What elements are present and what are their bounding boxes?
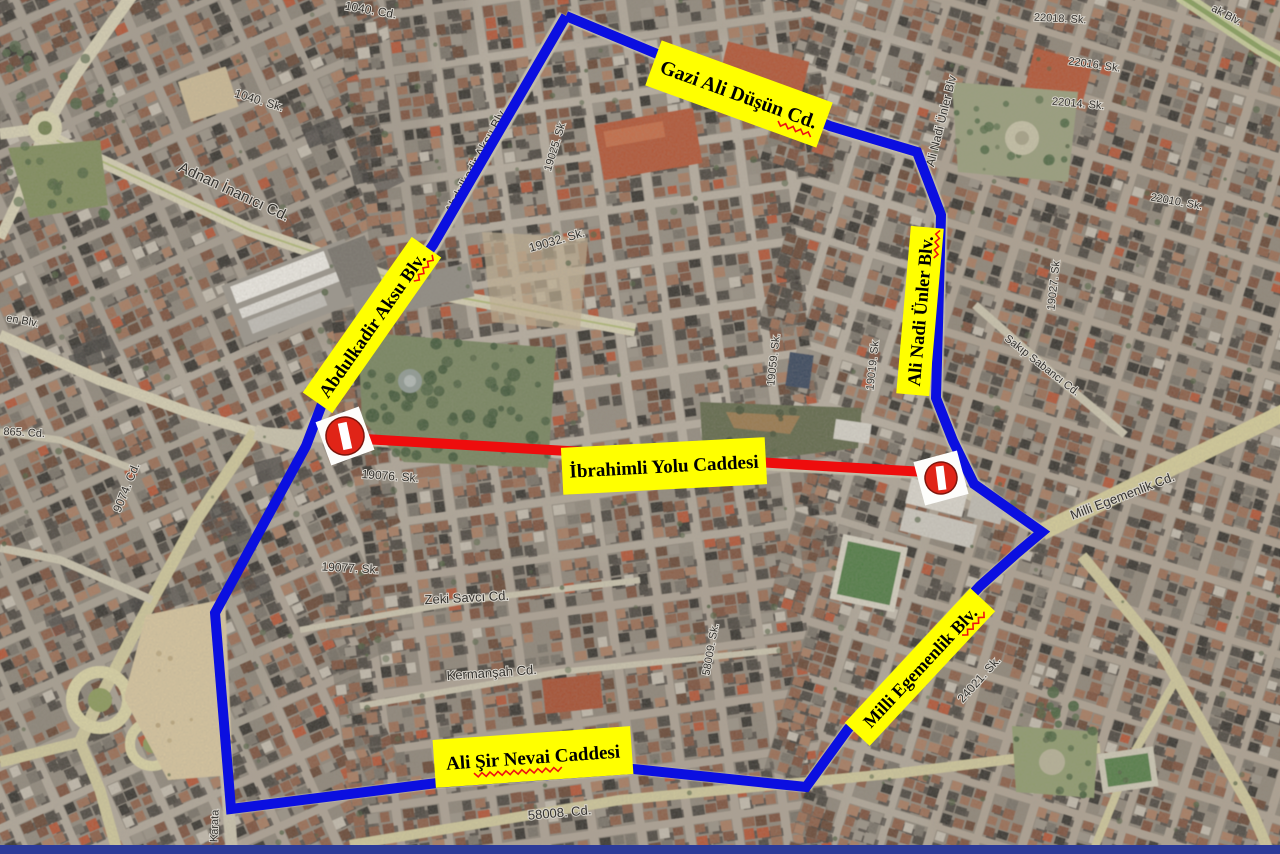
svg-text:Karata: Karata <box>208 809 221 843</box>
svg-text:19077. Sk.: 19077. Sk. <box>321 560 379 577</box>
svg-text:865. Cd.: 865. Cd. <box>3 426 45 440</box>
